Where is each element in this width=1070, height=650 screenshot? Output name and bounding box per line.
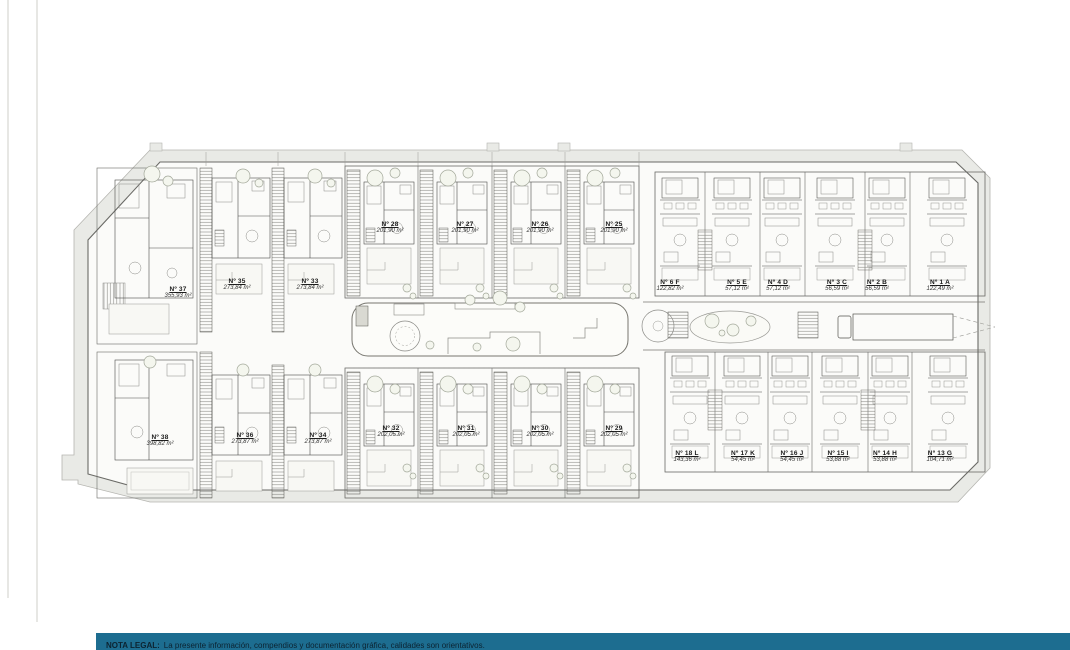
stairs-band [200,352,212,498]
unit-label-25: Nº 25201,90 m² [600,221,627,234]
unit-label-26: Nº 26201,90 m² [526,221,553,234]
unit-label-31: Nº 31202,05 m² [452,425,479,438]
unit-label-1A: Nº 1 A122,49 m² [926,279,953,292]
unit-label-34: Nº 34273,87 m² [304,432,331,445]
legal-note-bar: NOTA LEGAL: La presente información, com… [96,633,1070,650]
unit-label-18L: Nº 18 L143,36 m² [673,450,700,463]
unit-label-17K: Nº 17 K54,45 m² [731,450,755,463]
unit-label-14H: Nº 14 H53,88 m² [873,450,897,463]
legal-note-label: NOTA LEGAL: [106,641,160,650]
unit-label-38: Nº 38398,82 m² [146,434,173,447]
unit-label-36: Nº 36273,87 m² [231,432,258,445]
legal-note-text: La presente información, compendios y do… [164,641,485,650]
unit-label-4D: Nº 4 D57,12 m² [766,279,790,292]
site-plan-drawing [0,0,1070,650]
stairs-band [200,168,212,332]
stairs-band [272,365,284,498]
unit-label-37: Nº 37355,93 m² [164,286,191,299]
unit-label-27: Nº 27201,90 m² [451,221,478,234]
stairs-band [798,312,818,338]
unit-label-28: Nº 28201,90 m² [376,221,403,234]
unit-label-5E: Nº 5 E57,12 m² [725,279,749,292]
pool-courtyard [352,303,628,356]
unit-label-2B: Nº 2 B56,59 m² [865,279,889,292]
stairs-band [272,168,284,332]
unit-label-33: Nº 33273,84 m² [296,278,323,291]
unit-label-13G: Nº 13 G104,71 m² [926,450,953,463]
unit-label-3C: Nº 3 C56,59 m² [825,279,849,292]
stairs-band [668,312,688,338]
unit-label-29: Nº 29202,05 m² [600,425,627,438]
unit-label-35: Nº 35273,84 m² [223,278,250,291]
site-plan-page: Nº 37355,93 m² Nº 35273,84 m² Nº 33273,8… [0,0,1070,650]
unit-label-32: Nº 32202,05 m² [377,425,404,438]
unit-label-16J: Nº 16 J54,45 m² [780,450,804,463]
unit-label-6F: Nº 6 F122,82 m² [656,279,683,292]
unit-label-15I: Nº 15 I53,88 m² [826,450,850,463]
frame-line [8,0,37,622]
unit-label-30: Nº 30202,05 m² [526,425,553,438]
